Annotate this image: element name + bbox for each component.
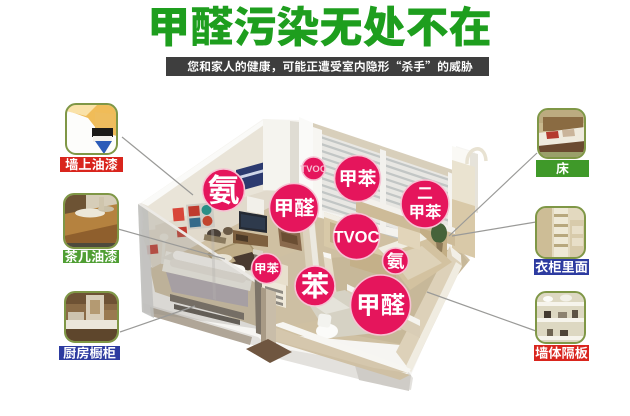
svg-text:TVOC: TVOC — [334, 229, 380, 247]
svg-text:TVOC: TVOC — [300, 164, 327, 175]
